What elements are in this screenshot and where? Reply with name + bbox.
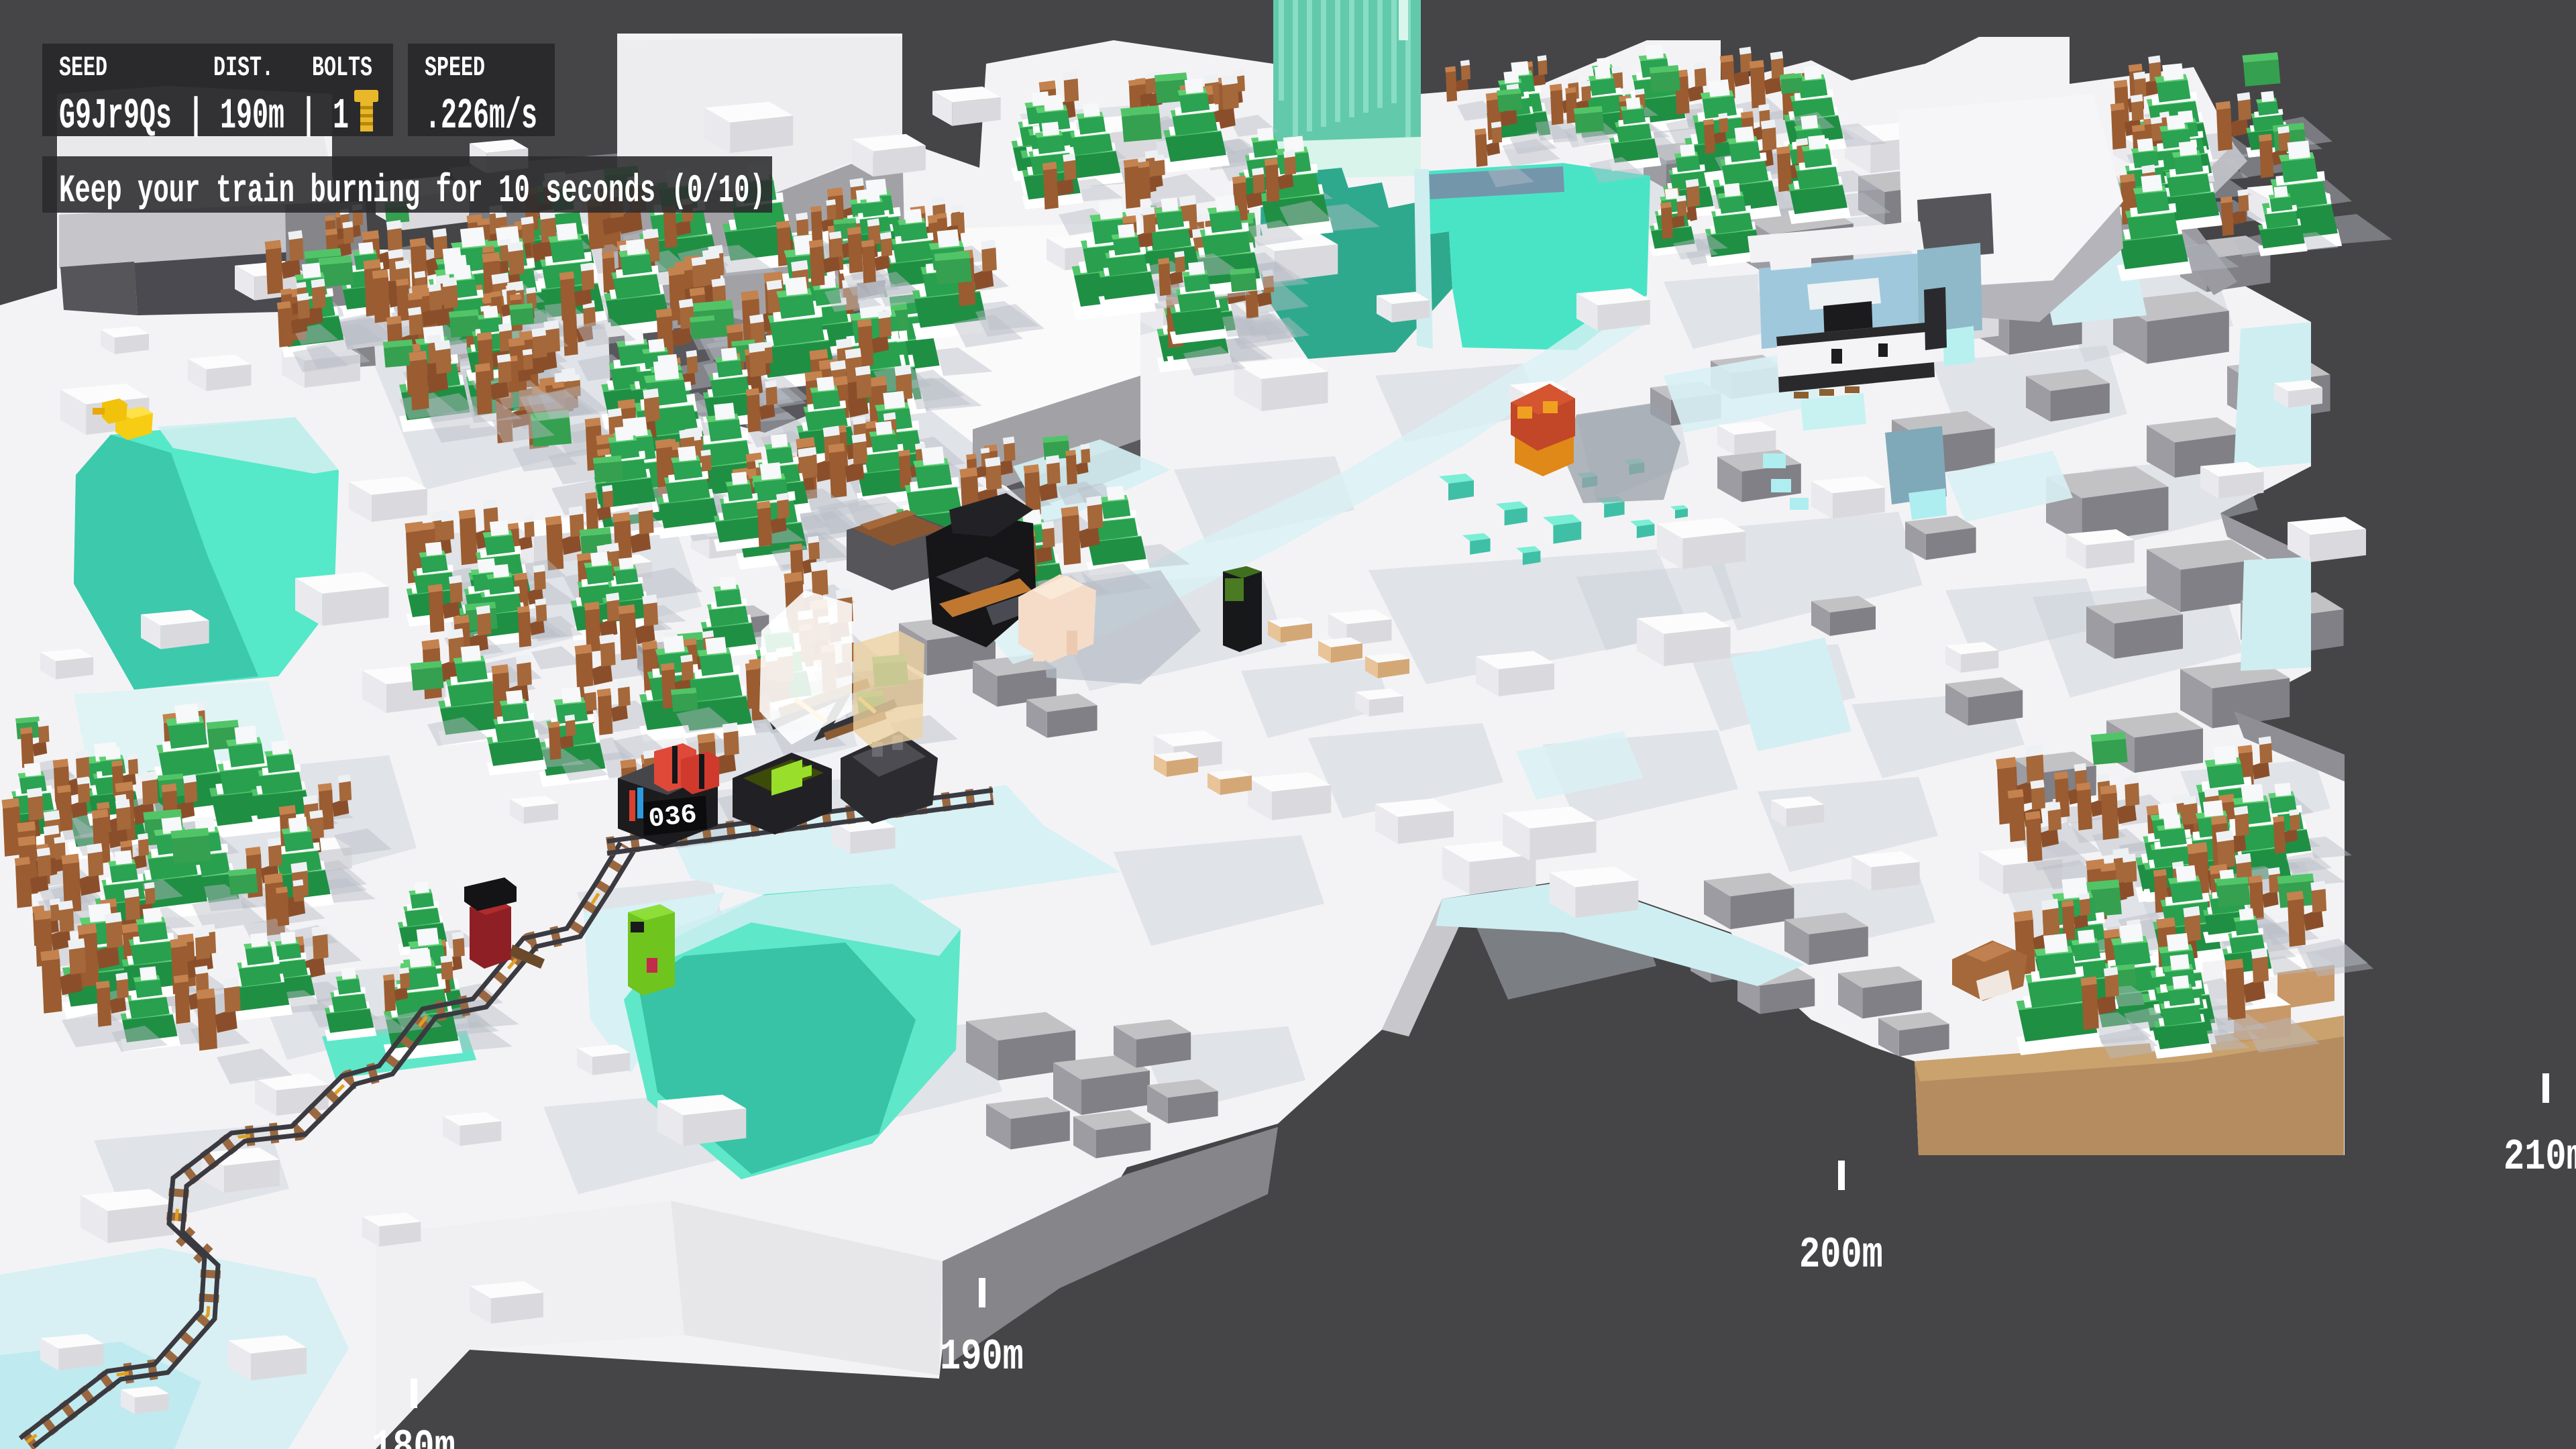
svg-text:180m: 180m: [372, 1423, 455, 1449]
svg-text:SEED: SEED: [59, 52, 107, 83]
svg-text:DIST.: DIST.: [213, 52, 274, 83]
svg-text:190m: 190m: [940, 1332, 1024, 1382]
svg-text:.226m/s: .226m/s: [425, 93, 537, 141]
svg-text:200m: 200m: [1799, 1230, 1883, 1280]
svg-text:036: 036: [647, 800, 698, 835]
svg-text:BOLTS: BOLTS: [312, 52, 372, 83]
svg-text:SPEED: SPEED: [425, 52, 485, 83]
svg-text:210m: 210m: [2504, 1132, 2576, 1182]
svg-text:G9Jr9Qs | 190m | 1: G9Jr9Qs | 190m | 1: [59, 93, 349, 141]
svg-text:Keep your train burning for 10: Keep your train burning for 10 seconds (…: [59, 169, 765, 213]
